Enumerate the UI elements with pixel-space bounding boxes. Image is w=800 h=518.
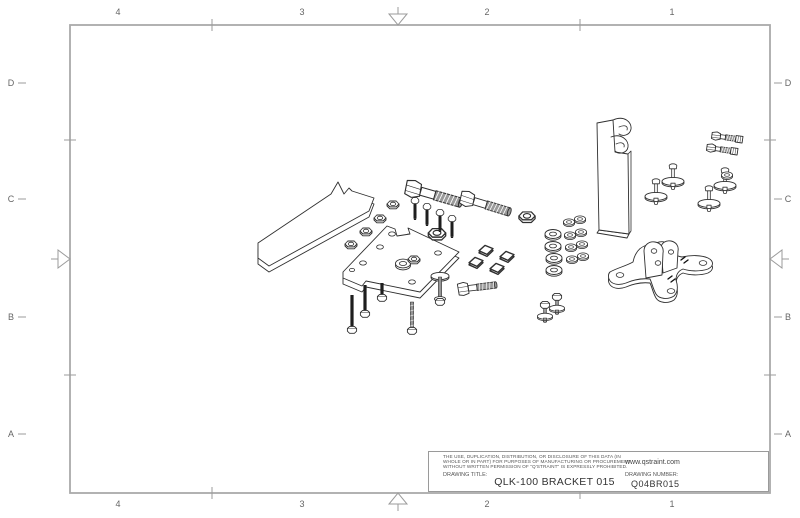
washer-column-large <box>545 230 562 277</box>
cross-base-plate-assembly <box>608 241 712 303</box>
zone-row-label: A <box>8 429 14 439</box>
bolt-with-washer <box>431 272 449 305</box>
zone-row-label: D <box>8 78 15 88</box>
zone-col-label: 2 <box>484 7 489 17</box>
zone-row-label: C <box>785 194 792 204</box>
zone-row-label: C <box>8 194 15 204</box>
hex-bolt-large-1 <box>403 178 465 211</box>
hex-bolt-short <box>457 278 497 296</box>
drawing-number: Q04BR015 <box>631 479 680 489</box>
hex-nut <box>408 256 420 264</box>
zone-col-label: 4 <box>115 7 120 17</box>
drawing-number-label: DRAWING NUMBER: <box>625 472 678 478</box>
center-arrow-bottom <box>389 493 407 511</box>
zone-row-label: B <box>785 312 791 322</box>
hex-bolt-large-2 <box>458 189 513 219</box>
drawing-sheet: 4 3 2 1 4 3 2 1 D C B A D C B A THE USE,… <box>0 0 800 518</box>
center-arrow-right <box>770 250 789 268</box>
zone-row-label: A <box>785 429 791 439</box>
zone-col-label: 2 <box>484 499 489 509</box>
center-arrow-top <box>389 7 407 25</box>
anchor-pin-group <box>645 164 736 212</box>
zone-col-label: 1 <box>669 7 674 17</box>
zone-col-label: 4 <box>115 499 120 509</box>
exploded-view <box>258 118 743 334</box>
website-link: www.qstraint.com <box>625 459 680 466</box>
legal-notice-line: WITHOUT WRITTEN PERMISSION OF "Q'STRAINT… <box>443 465 628 470</box>
j-hook-bracket <box>597 118 631 238</box>
washer-column-small <box>563 216 588 264</box>
small-bolt-group <box>706 131 743 179</box>
flange-bolt-group <box>537 293 564 322</box>
drawing-title: QLK-100 BRACKET 015 <box>457 476 652 488</box>
hex-flange-nut-large <box>428 229 445 240</box>
zone-col-label: 1 <box>669 499 674 509</box>
zone-row-label: D <box>785 78 792 88</box>
square-nut-group <box>469 245 514 274</box>
hex-nut-for-bolt <box>519 212 535 223</box>
zone-col-label: 3 <box>299 7 304 17</box>
center-arrow-left <box>51 250 70 268</box>
engineering-drawing-canvas <box>0 0 800 518</box>
zone-row-label: B <box>8 312 14 322</box>
title-block: THE USE, DUPLICATION, DISTRIBUTION, OR D… <box>428 451 769 492</box>
zone-col-label: 3 <box>299 499 304 509</box>
